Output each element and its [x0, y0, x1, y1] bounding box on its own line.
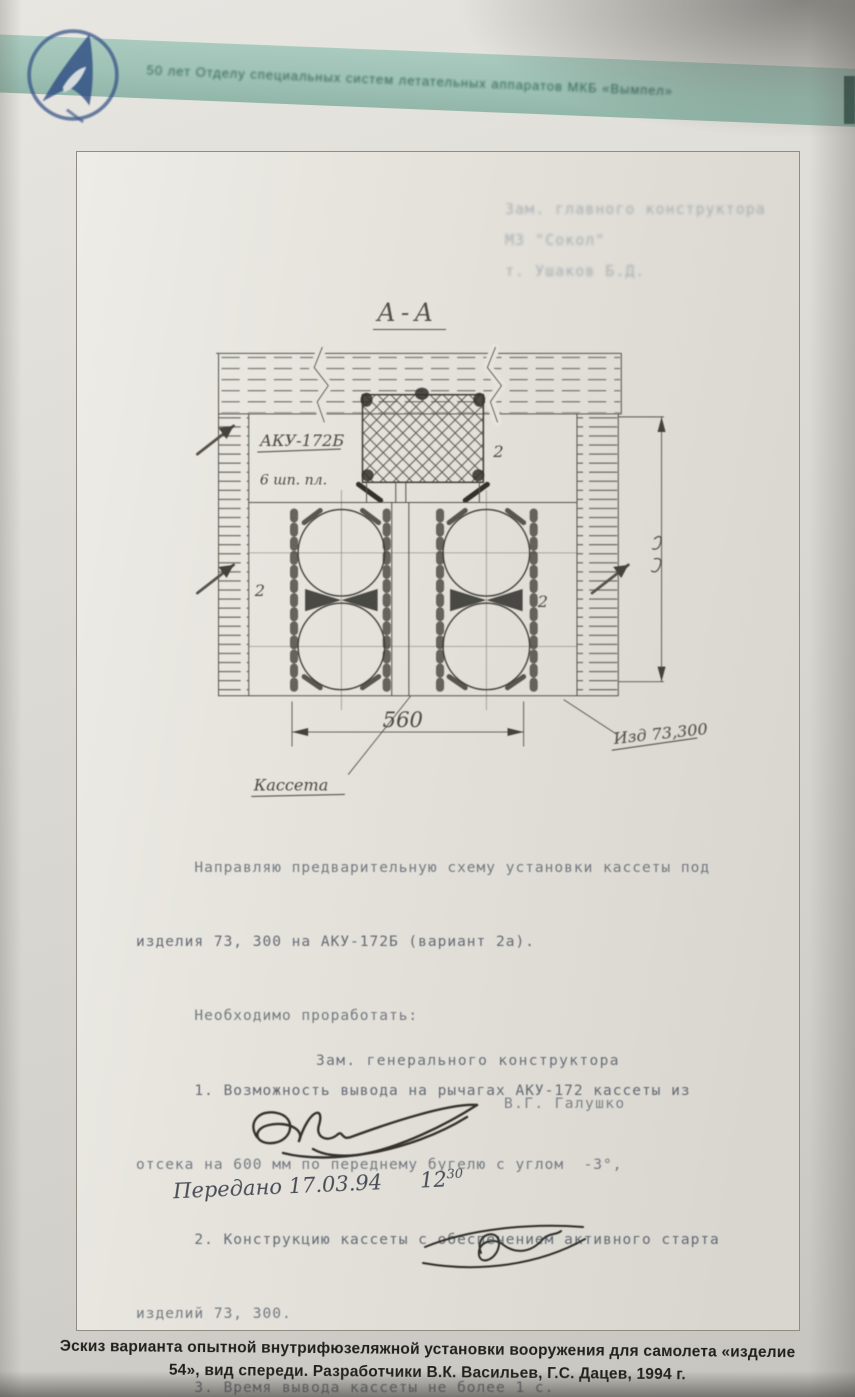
transfer-hours: 12 [419, 1167, 447, 1192]
typed-line: Необходимо проработать: [136, 1004, 720, 1029]
launcher-pylon-block [363, 395, 484, 483]
position-mark: 2 [537, 592, 548, 611]
position-mark: 2 [254, 581, 265, 600]
section-view-label: А-А [373, 298, 446, 330]
photo-vignette [0, 0, 22, 1397]
launcher-sub-label: 6 шп. пл. [260, 472, 327, 488]
pylon-clamps [358, 484, 487, 500]
page-number-tab [844, 76, 855, 124]
position-mark: 2 [492, 442, 503, 461]
photo-vignette [809, 0, 855, 1397]
missile-leader [564, 700, 616, 734]
suspension-bowties [305, 589, 522, 611]
header-band: 50 лет Отделу специальных систем летател… [0, 34, 855, 128]
typed-line: изделия 73, 300 на АКУ-172Б (вариант 2а)… [136, 930, 720, 955]
signoff-title: Зам. генерального конструктора [316, 1053, 620, 1069]
header-band-text: 50 лет Отделу специальных систем летател… [146, 40, 675, 119]
signature-transfer [419, 1213, 589, 1278]
left-wall-hatch [219, 414, 249, 696]
typed-line: Направляю предварительную схему установк… [136, 856, 720, 881]
addressee-line: МЗ "Сокол" [505, 225, 766, 256]
signoff-name: В.Г. Галушко [504, 1096, 626, 1112]
addressee-block: Зам. главного конструктора МЗ "Сокол" т.… [505, 194, 766, 287]
vympel-logo-icon [22, 24, 124, 126]
book-page-photo: 50 лет Отделу специальных систем летател… [0, 0, 855, 1397]
typed-line: изделий 73, 300. [136, 1302, 720, 1327]
document-sheet: Зам. главного конструктора МЗ "Сокол" т.… [76, 151, 800, 1331]
signature-galushko [239, 1079, 509, 1169]
launcher-label: АКУ-172Б [259, 431, 345, 450]
cassette-divider [392, 502, 409, 695]
dimension-note-squiggle [651, 536, 660, 571]
technical-drawing: АКУ-172Б 6 шп. пл. 2 2 2 560 Кассета Изд… [141, 341, 725, 825]
missile-type-label: Изд 73,300 [612, 719, 709, 748]
addressee-line: Зам. главного конструктора [505, 194, 766, 225]
right-wall-hatch [577, 414, 618, 696]
addressee-line: т. Ушаков Б.Д. [505, 256, 766, 287]
width-dimension-value: 560 [383, 707, 423, 732]
pylon-struts [367, 482, 480, 502]
transfer-minutes: 30 [446, 1167, 463, 1183]
cassette-label: Кассета [253, 775, 329, 794]
figure-caption: Эскиз варианта опытной внутрифюзеляжной … [20, 1334, 835, 1387]
